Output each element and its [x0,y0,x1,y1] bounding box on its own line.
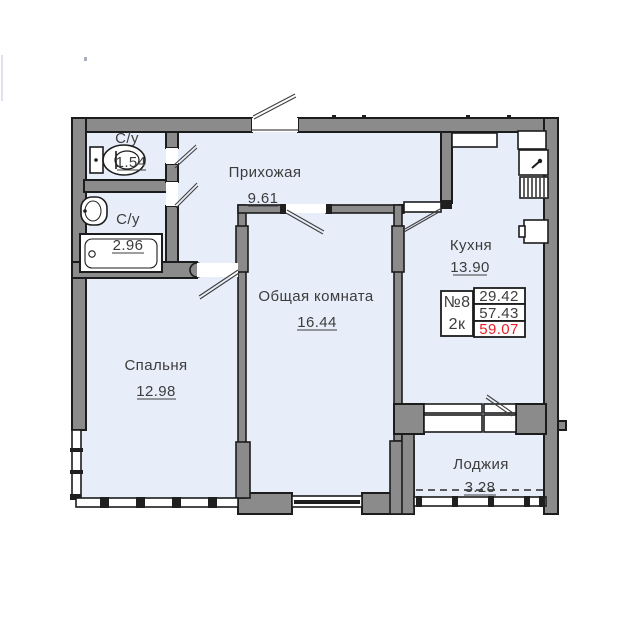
living-room-label: Общая комната [258,288,373,305]
bathroom-large-area: 2.96 [113,237,144,254]
apartment-info-box: №8 2к 29.42 57.43 59.07 [441,288,525,338]
washbasin-icon [81,197,107,225]
bedroom-area: 12.98 [136,383,176,400]
bathroom-large-label: С/у [116,211,140,228]
apartment-type: 2к [449,316,466,333]
edge-artifacts [1,55,87,101]
hallway-label: Прихожая [229,164,302,181]
bedroom-label: Спальня [124,357,187,374]
bedroom-window-left [72,430,81,498]
info-value-2: 57.43 [479,305,519,322]
kitchen-label: Кухня [450,237,492,254]
bathroom-small-label: С/у [115,130,139,147]
fridge-icon [519,220,548,243]
loggia-area: 3.28 [465,479,496,496]
apartment-number: №8 [444,294,471,311]
bathroom-small-area: 1.54 [116,154,147,171]
vent-duct [518,131,546,149]
hallway-area: 9.61 [248,190,279,207]
info-value-3-highlighted: 59.07 [479,321,519,338]
vent-duct [452,133,497,147]
loggia-label: Лоджия [453,456,509,473]
living-room-area: 16.44 [297,314,337,331]
floor-plan-drawing: С/у 1.54 Прихожая 9.61 С/у 2.96 Кухня 13… [0,0,621,621]
kitchen-area: 13.90 [450,259,490,276]
stove-icon [520,177,548,198]
floor-plan-page: С/у 1.54 Прихожая 9.61 С/у 2.96 Кухня 13… [0,0,621,621]
entrance-door-swing [253,94,296,119]
kitchen-sink-icon [519,150,548,175]
info-value-1: 29.42 [479,288,519,305]
